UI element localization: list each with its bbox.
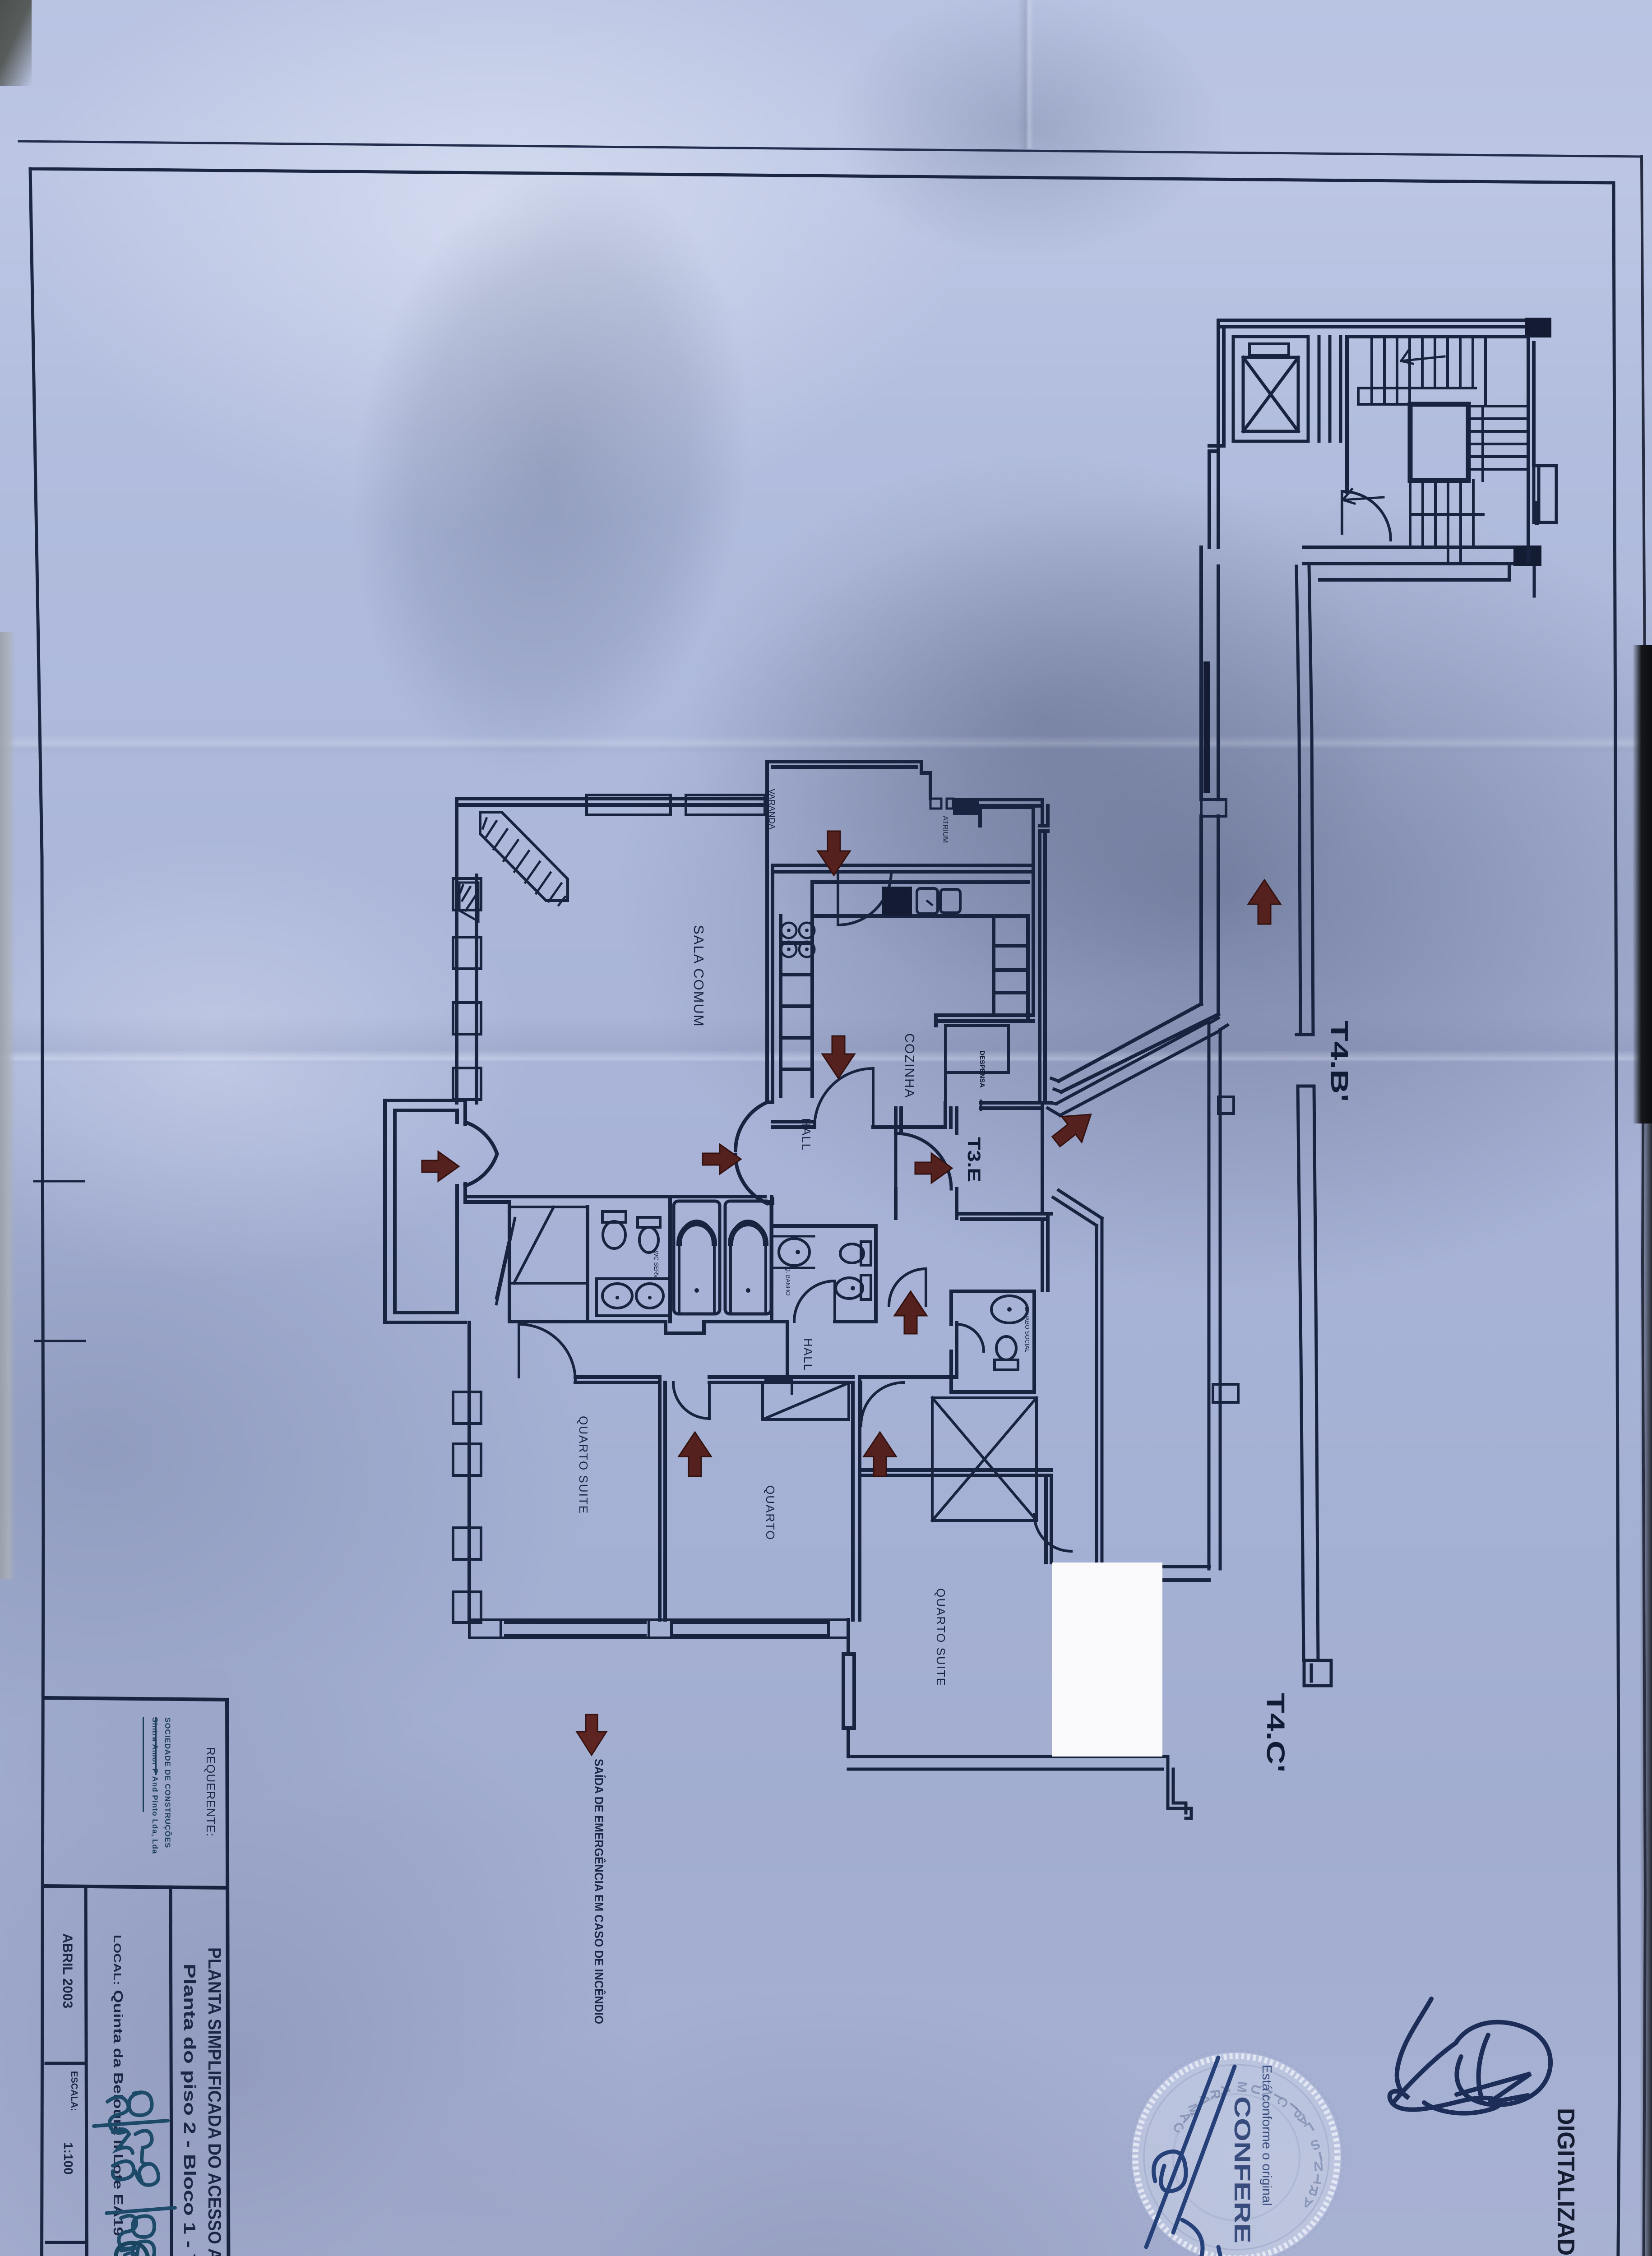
- svg-text:ESCALA:: ESCALA:: [69, 2071, 79, 2111]
- svg-text:CONFERE: CONFERE: [1230, 2096, 1255, 2243]
- svg-text:HALL: HALL: [800, 1118, 813, 1151]
- svg-text:1:100: 1:100: [61, 2142, 75, 2175]
- svg-text:T4.B': T4.B': [1326, 1021, 1353, 1102]
- svg-text:T4.C': T4.C': [1262, 1693, 1290, 1772]
- svg-text:PLANTA SIMPLIFICADA DO ACESSO: PLANTA SIMPLIFICADA DO ACESSO AO FOGO: [204, 1947, 224, 2256]
- svg-text:HALL: HALL: [801, 1338, 815, 1371]
- svg-text:Q. BANHO: Q. BANHO: [785, 1267, 791, 1296]
- svg-text:REQUERENTE:: REQUERENTE:: [204, 1747, 217, 1837]
- svg-text:COZINHA: COZINHA: [902, 1033, 916, 1099]
- svg-text:QUARTO SUITE: QUARTO SUITE: [577, 1416, 590, 1514]
- svg-text:Está conforme o original: Está conforme o original: [1259, 2065, 1274, 2206]
- svg-text:LOCAL: Quinta da Beloura II: LOCAL: Quinta da Beloura II Lote EA19: [111, 1935, 125, 2236]
- svg-text:QUARTO SUITE: QUARTO SUITE: [934, 1588, 948, 1687]
- svg-text:DIGITALIZADO: DIGITALIZADO: [1552, 2108, 1579, 2256]
- svg-text:ATRIUM: ATRIUM: [941, 816, 949, 843]
- svg-text:WC SERV.: WC SERV.: [653, 1251, 660, 1279]
- svg-text:QUARTO: QUARTO: [764, 1485, 777, 1540]
- svg-text:SAÍDA DE EMERGÊNCIA EM CASO DE: SAÍDA DE EMERGÊNCIA EM CASO DE INCÊNDIO: [592, 1759, 606, 2024]
- svg-text:DESPENSA: DESPENSA: [978, 1050, 986, 1088]
- svg-text:VARANDA: VARANDA: [767, 789, 776, 830]
- svg-text:Planta do piso 2 - Bloco 1 - T: Planta do piso 2 - Bloco 1 - T3 E: [180, 1964, 199, 2256]
- svg-text:T3.E: T3.E: [964, 1137, 984, 1182]
- svg-text:LAVABO SOCIAL: LAVABO SOCIAL: [1024, 1307, 1031, 1352]
- svg-text:Sintra Amor P And Pinto Ld: Sintra Amor P And Pinto Lda, Lda: [151, 1717, 159, 1854]
- svg-text:ABRIL 2003: ABRIL 2003: [60, 1933, 75, 2008]
- svg-text:SOCIEDADE DE CONSTRUÇÕES: SOCIEDADE DE CONSTRUÇÕES: [163, 1717, 172, 1848]
- svg-text:SALA COMUM: SALA COMUM: [691, 925, 707, 1027]
